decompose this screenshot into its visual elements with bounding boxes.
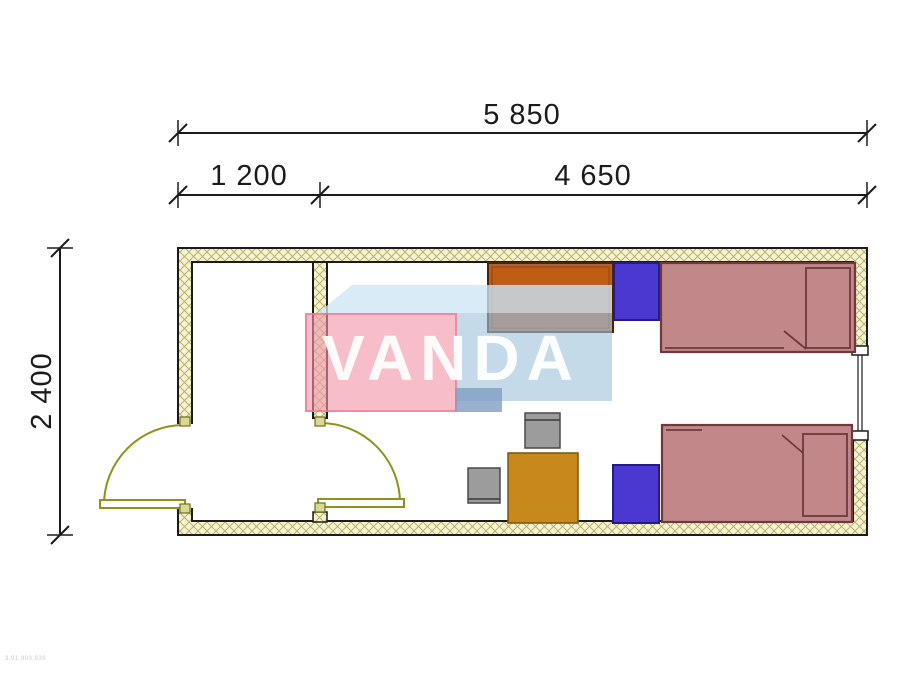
chair-top	[525, 413, 560, 448]
locker-bottom	[613, 465, 659, 523]
dimension-depth: 2 400	[27, 331, 57, 451]
dimension-main-room-width: 4 650	[513, 161, 673, 191]
chair-left	[468, 468, 500, 503]
bed-top	[661, 263, 855, 352]
drawing-code: 3.91.903.939	[5, 656, 46, 663]
interior-door	[315, 417, 404, 512]
partition-wall	[313, 262, 327, 522]
entry-door-opening	[175, 424, 195, 508]
bed-bottom	[662, 425, 852, 522]
locker-top	[614, 263, 659, 320]
table	[508, 453, 578, 523]
floor-plan-canvas: 5 850 1 200 4 650 2 400 VANDA 3.91.903.9…	[0, 0, 924, 700]
dimension-left-room-width: 1 200	[169, 161, 329, 191]
dimension-total-width: 5 850	[442, 100, 602, 130]
wardrobe	[488, 263, 613, 332]
